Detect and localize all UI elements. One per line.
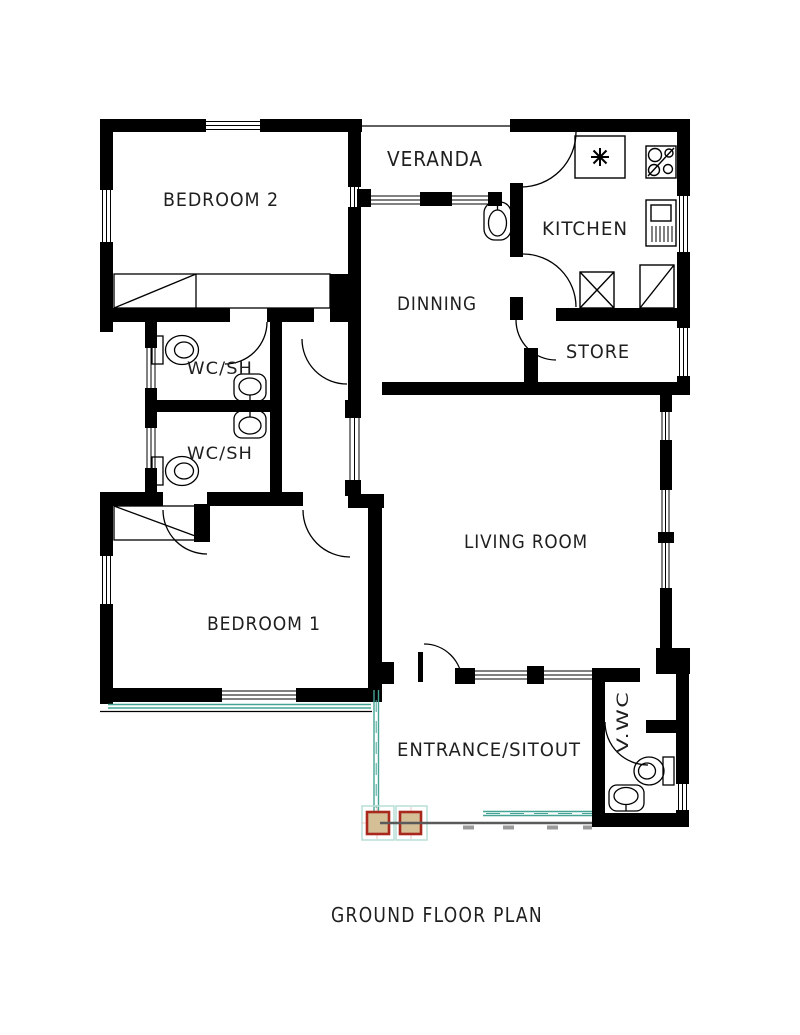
kitchen-door-arc <box>521 132 576 187</box>
wash-basin-icon <box>484 202 511 240</box>
floor-plan-drawing: VERANDA BEDROOM 2 KITCHEN DINNING STORE … <box>0 0 800 1035</box>
wash-basin-icon <box>234 411 266 438</box>
room-label-bedroom-2: BEDROOM 2 <box>163 189 279 211</box>
wash-basin-icon <box>234 374 266 401</box>
washing-machine-icon <box>580 272 614 308</box>
wardrobe-icon <box>114 506 206 540</box>
room-label-kitchen: KITCHEN <box>542 218 628 240</box>
hallway-door-arc <box>302 339 347 384</box>
floor-plan-page: VERANDA BEDROOM 2 KITCHEN DINNING STORE … <box>0 0 800 1035</box>
bedroom1-door-arc <box>303 510 350 557</box>
wash-basin-icon <box>609 785 644 811</box>
corner-counter-icon <box>640 265 674 308</box>
room-label-wc-sh-upper: WC/SH <box>187 359 253 378</box>
store-door-arc <box>516 320 556 360</box>
room-label-store: STORE <box>566 341 630 363</box>
room-label-v-wc: V.WC <box>613 691 632 753</box>
room-label-veranda: VERANDA <box>387 147 483 171</box>
refrigerator-icon <box>646 200 676 246</box>
room-label-entrance-sitout: ENTRANCE/SITOUT <box>397 739 581 761</box>
room-labels: VERANDA BEDROOM 2 KITCHEN DINNING STORE … <box>163 147 632 761</box>
plan-title: GROUND FLOOR PLAN <box>331 903 543 927</box>
dinning-kitchen-door-arc <box>523 254 576 307</box>
kitchen-sink-icon <box>575 136 625 178</box>
stove-icon <box>646 146 676 178</box>
room-label-dinning: DINNING <box>397 293 477 315</box>
room-label-bedroom-1: BEDROOM 1 <box>207 613 321 635</box>
room-label-wc-sh-lower: WC/SH <box>187 444 253 463</box>
wardrobe-icon <box>114 274 330 308</box>
toilet-icon <box>634 757 674 785</box>
room-label-living-room: LIVING ROOM <box>464 531 588 553</box>
wc-upper-door-arc <box>225 322 267 364</box>
